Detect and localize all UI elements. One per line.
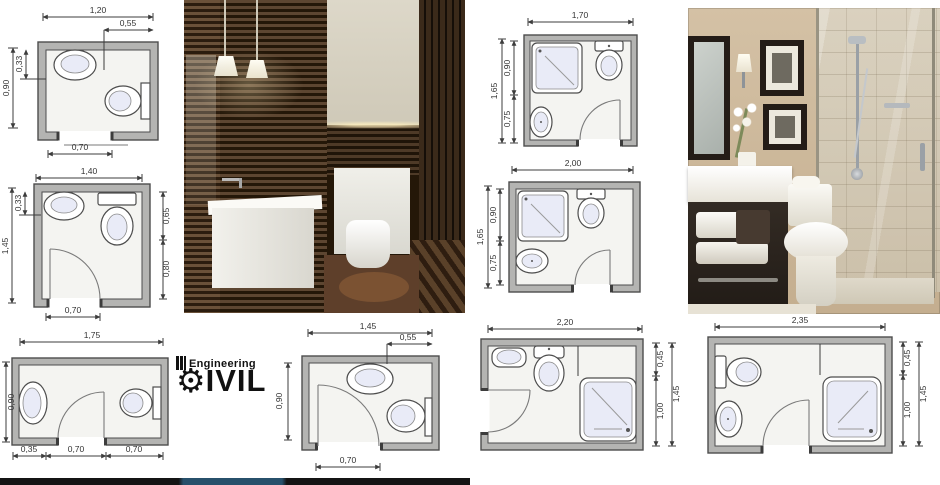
sink bbox=[530, 107, 552, 137]
lamp-glow bbox=[194, 50, 304, 120]
shower-floor bbox=[824, 278, 934, 304]
dim-label: 0,55 bbox=[120, 18, 137, 28]
dim-label: 0,70 bbox=[68, 444, 85, 454]
pendant-cord bbox=[224, 0, 226, 56]
toilet bbox=[98, 193, 136, 245]
photo-beige-bathroom bbox=[688, 8, 940, 314]
dim-label: 0,70 bbox=[126, 444, 143, 454]
glass-door-edge bbox=[932, 8, 935, 298]
photo-wood-slat-bathroom bbox=[184, 0, 465, 313]
shower bbox=[580, 378, 636, 441]
folded-towel bbox=[792, 176, 820, 188]
vessel-sink bbox=[688, 166, 792, 202]
vanity-front bbox=[212, 208, 314, 288]
dim-label: 0,75 bbox=[502, 110, 512, 127]
dim-label: 1,70 bbox=[572, 10, 589, 20]
drawer-handle bbox=[698, 278, 778, 282]
dim-label: 0,65 bbox=[161, 207, 171, 224]
floorplan-3: 1,75 0,90 0,35 0,70 0,70 bbox=[0, 325, 210, 485]
floorplan-8: 2,35 0,45 1,00 1,45 bbox=[690, 315, 940, 485]
shower-valve bbox=[851, 168, 863, 180]
toilet-base bbox=[796, 256, 836, 306]
back-wall-upper bbox=[327, 0, 419, 125]
dim-label: 0,90 bbox=[6, 393, 16, 410]
dim-label: 0,45 bbox=[902, 349, 912, 366]
towel-roll bbox=[696, 242, 768, 264]
dim-label: 0,33 bbox=[14, 55, 24, 72]
toilet bbox=[715, 356, 761, 388]
floorplan-4: 1,45 0,55 0,90 0,70 bbox=[278, 323, 480, 485]
brand-logo: Engineering ⚙IVIL bbox=[176, 356, 306, 394]
mirror-frame bbox=[688, 36, 730, 160]
dim-label: 0,70 bbox=[65, 305, 82, 315]
mirror-glass bbox=[694, 42, 724, 154]
shower bbox=[823, 377, 881, 441]
dim-label: 1,00 bbox=[655, 402, 665, 419]
dim-label: 1,45 bbox=[0, 237, 10, 254]
dim-label: 0,90 bbox=[274, 392, 284, 409]
dim-label: 1,20 bbox=[90, 5, 107, 15]
sink bbox=[516, 249, 548, 273]
door-handle bbox=[920, 143, 925, 171]
sink bbox=[54, 50, 96, 80]
floorplan-7: 2,20 0,45 1,00 1,45 bbox=[470, 318, 692, 483]
framed-picture-bottom bbox=[763, 104, 807, 150]
sink bbox=[19, 382, 47, 424]
dim-label: 1,45 bbox=[918, 385, 928, 402]
dim-label: 1,65 bbox=[475, 228, 485, 245]
orchid-flowers bbox=[728, 100, 762, 140]
dim-label: 0,55 bbox=[400, 332, 417, 342]
dim-label: 0,70 bbox=[72, 142, 89, 152]
wall-hung-toilet bbox=[346, 220, 390, 268]
dim-label: 1,75 bbox=[84, 330, 101, 340]
dim-label: 1,45 bbox=[671, 385, 681, 402]
gear-icon: ⚙ bbox=[176, 368, 206, 394]
toilet bbox=[577, 189, 605, 228]
dim-label: 2,00 bbox=[565, 158, 582, 168]
dim-label: 2,35 bbox=[792, 315, 809, 325]
sink bbox=[347, 364, 393, 394]
toilet bbox=[534, 346, 564, 391]
dim-label: 0,90 bbox=[488, 206, 498, 223]
wall-sconce bbox=[736, 54, 752, 72]
dim-label: 0,80 bbox=[161, 260, 171, 277]
shower-shelf bbox=[884, 103, 910, 108]
bottom-banner-edge bbox=[0, 478, 470, 485]
dim-label: 0,90 bbox=[502, 59, 512, 76]
cove-lights bbox=[327, 120, 419, 130]
vanity-cabinet bbox=[688, 202, 788, 314]
logo-name-text: IVIL bbox=[206, 368, 267, 394]
bathroom-layouts-collage: 1,20 0,55 0,90 0,33 0,70 1,40 bbox=[0, 0, 940, 485]
shower bbox=[518, 191, 568, 241]
floorplan-5: 1,70 1,65 0,90 0,75 bbox=[487, 0, 687, 162]
dim-label: 1,45 bbox=[360, 321, 377, 331]
floor-highlight bbox=[339, 272, 409, 302]
sink bbox=[716, 401, 742, 437]
shower-head bbox=[848, 36, 866, 44]
floorplan-2: 1,40 1,45 0,33 0,65 0,80 0,70 bbox=[0, 165, 190, 325]
dim-label: 0,90 bbox=[1, 79, 11, 96]
dim-label: 1,40 bbox=[81, 166, 98, 176]
dim-label: 0,45 bbox=[655, 350, 665, 367]
sconce-stem bbox=[742, 72, 745, 88]
dim-label: 0,35 bbox=[21, 444, 38, 454]
framed-picture-top bbox=[760, 40, 804, 96]
toilet bbox=[120, 387, 161, 419]
sink bbox=[492, 348, 526, 367]
walls bbox=[38, 42, 158, 145]
dim-label: 2,20 bbox=[557, 317, 574, 327]
faucet-spout bbox=[239, 178, 242, 188]
shower bbox=[532, 43, 582, 93]
floorplan-1: 1,20 0,55 0,90 0,33 0,70 bbox=[0, 0, 190, 165]
dim-label: 1,65 bbox=[489, 82, 499, 99]
storage-basket bbox=[736, 210, 770, 244]
toilet-tank bbox=[788, 184, 832, 226]
dim-label: 0,33 bbox=[13, 194, 23, 211]
floorplan-6: 2,00 1,65 0,90 0,75 bbox=[470, 155, 685, 320]
dim-label: 0,75 bbox=[488, 254, 498, 271]
toilet bbox=[595, 41, 623, 80]
picture-image bbox=[775, 116, 795, 138]
picture-image bbox=[772, 53, 792, 83]
bathroom-floor bbox=[688, 304, 816, 314]
dim-label: 0,70 bbox=[340, 455, 357, 465]
dim-label: 1,00 bbox=[902, 401, 912, 418]
sink bbox=[44, 192, 84, 220]
